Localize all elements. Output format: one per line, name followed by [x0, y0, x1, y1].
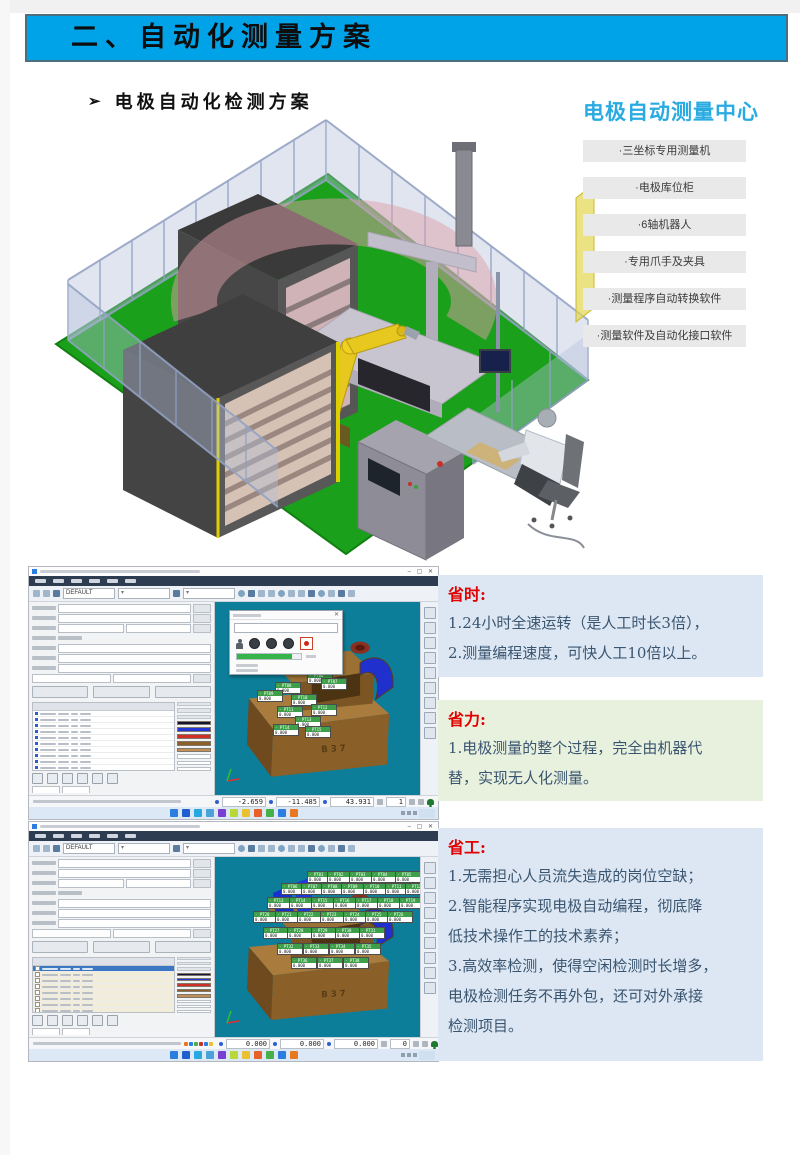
measure-point-label: · PT120.000 — [405, 883, 420, 895]
row-check-icon — [35, 1002, 40, 1007]
row-cell — [42, 998, 58, 1000]
panel-button — [32, 941, 88, 953]
row-cell — [40, 767, 56, 769]
benefit-box-2: 省力:1.电极测量的整个过程，完全由机器代替，实现无人化测量。 — [438, 700, 763, 801]
dialog-button — [283, 638, 294, 649]
toolbar-icon — [308, 590, 315, 597]
panel-buttons — [32, 686, 211, 698]
point-value: 0.000 — [400, 903, 420, 908]
row-check-icon — [35, 754, 38, 757]
color-swatch — [177, 748, 211, 753]
right-toolbar — [420, 602, 438, 795]
row-cell — [82, 974, 93, 976]
point-value: 0.000 — [330, 949, 354, 954]
menu-item — [107, 834, 118, 838]
row-check-icon — [35, 984, 40, 989]
point-value: 0.000 — [274, 730, 298, 735]
bell-icon — [427, 799, 434, 805]
form-row — [32, 859, 211, 867]
row-cell — [60, 968, 71, 970]
row-cell — [58, 761, 69, 763]
menu-item — [35, 579, 46, 583]
taskbar-clock — [419, 809, 435, 818]
benefit-title: 省力: — [448, 707, 753, 733]
table-header — [33, 958, 174, 966]
menu-item — [53, 579, 64, 583]
point-value: 0.000 — [388, 917, 412, 922]
measure-point-label: · PT350.000 — [355, 943, 381, 955]
menu-item — [53, 834, 64, 838]
point-value: 0.000 — [264, 933, 288, 938]
coord-y: -11.485 — [276, 797, 320, 807]
row-cell — [82, 1004, 93, 1006]
toolbar-icon — [33, 590, 40, 597]
benefit-line: 1.电极测量的整个过程，完全由机器代 — [448, 733, 753, 763]
point-value: 0.000 — [321, 917, 345, 922]
window-controls: – ▢ ✕ — [408, 569, 438, 575]
row-cell — [73, 968, 80, 970]
system-tray — [401, 807, 435, 819]
taskbar-app-icon — [278, 809, 286, 817]
measure-center-item: ·6轴机器人 — [583, 214, 746, 236]
row-check-icon — [35, 724, 38, 727]
menu-item — [125, 834, 136, 838]
row-cell — [82, 980, 93, 982]
row-cell — [60, 974, 71, 976]
row-check-icon — [35, 736, 38, 739]
axis-triad — [223, 1007, 243, 1027]
preset-dropdown: DEFAULT — [63, 588, 115, 599]
taskbar-app-icon — [230, 1051, 238, 1059]
form-row — [32, 889, 211, 897]
row-cell — [60, 998, 71, 1000]
table-side-column — [177, 957, 211, 1013]
row-cell — [40, 731, 56, 733]
taskbar-app-icon — [254, 1051, 262, 1059]
toolbar-icon — [268, 845, 275, 852]
dropdown: ▾ — [118, 588, 170, 599]
panel-button — [32, 686, 88, 698]
table-header — [33, 703, 174, 711]
bell-icon — [431, 1041, 438, 1047]
taskbar-app-icon — [266, 1051, 274, 1059]
row-cell — [82, 1010, 93, 1012]
window-controls: – ▢ ✕ — [408, 824, 438, 830]
row-check-icon — [35, 760, 38, 763]
benefit-line: 替，实现无人化测量。 — [448, 763, 753, 793]
coord-z: 0.000 — [334, 1039, 378, 1049]
row-cell — [82, 968, 93, 970]
search-row — [32, 929, 211, 937]
point-value: 0.000 — [304, 949, 328, 954]
view-tool-icon — [424, 937, 436, 949]
color-swatch — [177, 973, 211, 976]
row-cell — [58, 767, 69, 769]
window-title-bar: – ▢ ✕ — [29, 567, 438, 576]
taskbar-app-icon — [230, 809, 238, 817]
form-row — [32, 644, 211, 652]
row-cell — [82, 986, 93, 988]
benefit-line: 3.高效率检测，使得空闲检测时长增多， — [448, 951, 753, 981]
color-swatch — [177, 989, 211, 992]
form-row — [32, 624, 211, 632]
panel-icon-row — [32, 773, 211, 784]
windows-taskbar — [29, 807, 438, 819]
form-row — [32, 614, 211, 622]
benefit-box-1: 省时:1.24小时全速运转（是人工时长3倍），2.测量编程速度，可快人工10倍以… — [438, 575, 763, 677]
taskbar-app-icon — [170, 809, 178, 817]
point-value: 0.000 — [298, 917, 322, 922]
dialog-button — [249, 638, 260, 649]
measure-center-item: ·三坐标专用测量机 — [583, 140, 746, 162]
feature-table — [32, 702, 175, 771]
view-tool-icon — [424, 712, 436, 724]
dialog-dropdown — [234, 623, 338, 633]
toolbar-icon — [268, 590, 275, 597]
row-cell — [42, 980, 58, 982]
toolbar-icon — [33, 845, 40, 852]
toolbar-icon — [298, 845, 305, 852]
point-value: 0.000 — [278, 949, 302, 954]
arrow-bullet-icon: ➢ — [88, 92, 101, 110]
toolbar-icon — [318, 845, 325, 852]
menu-item — [89, 834, 100, 838]
row-cell — [82, 992, 93, 994]
window-title-text — [40, 825, 200, 828]
app-icon — [32, 569, 37, 574]
page-top-margin — [0, 0, 800, 13]
row-cell — [73, 998, 80, 1000]
taskbar-app-icon — [266, 809, 274, 817]
view-tool-icon — [424, 952, 436, 964]
measure-point-label: · PT050.000 — [395, 871, 420, 883]
taskbar-app-icon — [206, 809, 214, 817]
toolbar-icon — [238, 845, 245, 852]
row-cell — [40, 719, 56, 721]
row-cell — [80, 725, 91, 727]
toolbar-icon — [53, 590, 60, 597]
toolbar: DEFAULT ▾ ▾ — [29, 841, 438, 857]
viewport-3d: B37 · PT010.000· PT020.000· PT030.000· P… — [215, 857, 420, 1037]
form-row — [32, 869, 211, 877]
row-cell — [40, 713, 56, 715]
row-cell — [71, 755, 78, 757]
benefit-line: 检测项目。 — [448, 1011, 753, 1041]
view-tool-icon — [424, 982, 436, 994]
menu-item — [35, 834, 46, 838]
taskbar-app-icon — [218, 809, 226, 817]
dropdown: ▾ — [183, 843, 235, 854]
form-row — [32, 879, 211, 887]
feature-table — [32, 957, 175, 1013]
toolbar-icon — [278, 845, 285, 852]
measure-point-label: · PT360.000 — [291, 957, 317, 969]
toolbar-icon — [258, 845, 265, 852]
toolbar-icon — [308, 845, 315, 852]
view-tool-icon — [424, 637, 436, 649]
taskbar-app-icon — [290, 809, 298, 817]
measure-center-item: ·测量程序自动转换软件 — [583, 288, 746, 310]
row-check-icon — [35, 972, 40, 977]
color-swatch — [177, 721, 211, 726]
measure-point-label: · PT290.000 — [311, 927, 337, 939]
point-value: 0.000 — [258, 696, 282, 701]
row-cell — [42, 1004, 58, 1006]
toolbar-icon — [43, 590, 50, 597]
measure-point-label: · PT070.000 — [321, 678, 347, 690]
toolbar-icon — [238, 590, 245, 597]
row-cell — [58, 713, 69, 715]
row-cell — [80, 731, 91, 733]
point-value: 0.000 — [360, 933, 384, 938]
color-swatch — [177, 734, 211, 739]
row-cell — [71, 725, 78, 727]
panel-buttons — [32, 941, 211, 953]
point-value: 0.000 — [306, 732, 330, 737]
row-cell — [60, 986, 71, 988]
section-banner: 二、自动化测量方案 — [25, 14, 788, 62]
status-mini-icons — [184, 1042, 213, 1046]
table-side-column — [177, 702, 211, 771]
row-check-icon — [35, 712, 38, 715]
row-cell — [73, 1010, 80, 1012]
row-check-icon — [35, 1008, 40, 1013]
measure-point-label: · PT280.000 — [287, 927, 313, 939]
toolbar: DEFAULT ▾ ▾ — [29, 586, 438, 602]
toolbar-icon — [173, 845, 180, 852]
view-tool-icon — [424, 922, 436, 934]
measure-point-label: · PT330.000 — [303, 943, 329, 955]
record-button — [300, 637, 313, 650]
probe-count: 0 — [390, 1039, 410, 1049]
status-text — [33, 800, 181, 803]
row-cell — [73, 974, 80, 976]
point-value: 0.000 — [356, 949, 380, 954]
toolbar-icon — [248, 845, 255, 852]
toolbar-icon — [53, 845, 60, 852]
taskbar-clock — [419, 1051, 435, 1060]
dropdown: ▾ — [183, 588, 235, 599]
form-row — [32, 654, 211, 662]
row-cell — [71, 731, 78, 733]
benefit-title: 省时: — [448, 582, 753, 608]
point-value: 0.000 — [344, 963, 368, 968]
row-cell — [80, 749, 91, 751]
row-cell — [71, 743, 78, 745]
row-check-icon — [35, 990, 40, 995]
toolbar-icon — [43, 845, 50, 852]
toolbar-icon — [338, 590, 345, 597]
benefit-line: 低技术操作工的技术素养； — [448, 921, 753, 951]
color-swatch — [177, 994, 211, 997]
row-cell — [58, 755, 69, 757]
view-tool-icon — [424, 697, 436, 709]
measure-point-label: · PT120.000 — [311, 704, 337, 716]
benefit-box-3: 省工:1.无需担心人员流失造成的岗位空缺；2.智能程序实现电极自动编程，彻底降低… — [438, 828, 763, 1061]
row-cell — [73, 986, 80, 988]
row-cell — [42, 986, 58, 988]
taskbar-app-icon — [290, 1051, 298, 1059]
menu-item — [71, 834, 82, 838]
measure-point-label: · PT090.000 — [257, 690, 283, 702]
view-tool-icon — [424, 907, 436, 919]
benefit-line: 1.24小时全速运转（是人工时长3倍）， — [448, 608, 753, 638]
point-value: 0.000 — [372, 877, 396, 882]
windows-taskbar — [29, 1049, 438, 1061]
menu-bar — [29, 576, 438, 586]
panel-icon-row — [32, 1015, 211, 1026]
row-cell — [58, 719, 69, 721]
row-cell — [42, 968, 58, 970]
row-cell — [58, 725, 69, 727]
taskbar-app-icon — [182, 1051, 190, 1059]
toolbar-icon — [298, 590, 305, 597]
taskbar-app-icon — [242, 1051, 250, 1059]
row-cell — [80, 737, 91, 739]
menu-item — [125, 579, 136, 583]
measure-point-label: · PT270.000 — [263, 927, 289, 939]
row-cell — [71, 761, 78, 763]
taskbar-app-icon — [278, 1051, 286, 1059]
row-check-icon — [35, 742, 38, 745]
view-tool-icon — [424, 652, 436, 664]
color-swatch — [177, 983, 211, 986]
table-row — [33, 1008, 174, 1013]
measure-point-label: · PT340.000 — [329, 943, 355, 955]
view-tool-icon — [424, 877, 436, 889]
menu-bar — [29, 831, 438, 841]
row-cell — [71, 767, 78, 769]
benefit-title: 省工: — [448, 835, 753, 861]
row-cell — [80, 755, 91, 757]
row-cell — [80, 767, 91, 769]
panel-tabs — [32, 1028, 211, 1035]
row-cell — [40, 725, 56, 727]
taskbar-app-icon — [206, 1051, 214, 1059]
row-cell — [42, 1010, 58, 1012]
row-cell — [58, 731, 69, 733]
dropdown: ▾ — [118, 843, 170, 854]
row-cell — [42, 992, 58, 994]
panel-button — [93, 686, 149, 698]
row-cell — [60, 992, 71, 994]
toolbar-icon — [173, 590, 180, 597]
row-cell — [71, 719, 78, 721]
measure-point-label: · PT260.000 — [387, 911, 413, 923]
row-cell — [60, 1010, 71, 1012]
row-cell — [80, 743, 91, 745]
form-row — [32, 634, 211, 642]
preset-dropdown: DEFAULT — [63, 843, 115, 854]
taskbar-app-icon — [254, 809, 262, 817]
coord-y: 0.000 — [280, 1039, 324, 1049]
menu-item — [107, 579, 118, 583]
toolbar-icon — [338, 845, 345, 852]
system-tray — [401, 1049, 435, 1061]
row-check-icon — [35, 766, 38, 769]
row-cell — [42, 974, 58, 976]
measure-center-item: ·电极库位柜 — [583, 177, 746, 199]
measure-point-label: · PT380.000 — [343, 957, 369, 969]
measure-center-list: ·三坐标专用测量机·电极库位柜·6轴机器人·专用爪手及夹具·测量程序自动转换软件… — [583, 140, 788, 347]
row-check-icon — [35, 966, 40, 971]
row-cell — [80, 713, 91, 715]
toolbar-icon — [348, 845, 355, 852]
row-cell — [40, 743, 56, 745]
subsection-title: 电极自动化检测方案 — [115, 88, 313, 114]
row-check-icon — [35, 978, 40, 983]
row-cell — [40, 755, 56, 757]
app-icon — [32, 824, 37, 829]
toolbar-icon — [328, 590, 335, 597]
color-swatch — [177, 978, 211, 981]
row-cell — [58, 743, 69, 745]
color-swatch — [177, 727, 211, 732]
window-title-bar: – ▢ ✕ — [29, 822, 438, 831]
point-value: 0.000 — [292, 963, 316, 968]
benefit-line: 电极检测任务不再外包，还可对外承接 — [448, 981, 753, 1011]
row-cell — [80, 719, 91, 721]
row-cell — [71, 749, 78, 751]
status-bar: 0.000 0.000 0.000 0 — [29, 1037, 438, 1049]
viewport-3d: B37 · PT010.000· PT020.000· PT030.000· P… — [215, 602, 420, 795]
row-cell — [73, 1004, 80, 1006]
form-row — [32, 899, 211, 907]
measure-center-item: ·专用爪手及夹具 — [583, 251, 746, 273]
subsection-heading: ➢ 电极自动化检测方案 — [88, 88, 313, 114]
axis-triad — [223, 765, 243, 785]
row-cell — [60, 1004, 71, 1006]
menu-item — [71, 579, 82, 583]
toolbar-icon — [318, 590, 325, 597]
measure-point-label: · PT040.000 — [371, 871, 397, 883]
row-cell — [73, 980, 80, 982]
view-tool-icon — [424, 967, 436, 979]
view-tool-icon — [424, 622, 436, 634]
point-value: 0.000 — [288, 933, 312, 938]
point-value: 0.000 — [336, 933, 360, 938]
view-tool-icon — [424, 892, 436, 904]
window-title-text — [40, 570, 200, 573]
view-tool-icon — [424, 862, 436, 874]
measure-center-item: ·测量软件及自动化接口软件 — [583, 325, 746, 347]
benefit-line: 2.测量编程速度，可快人工10倍以上。 — [448, 638, 753, 668]
toolbar-icon — [278, 590, 285, 597]
point-value: 0.000 — [312, 933, 336, 938]
svg-text:B37: B37 — [321, 744, 349, 756]
robot-cell-illustration — [28, 112, 608, 562]
panel-tabs — [32, 786, 211, 793]
coord-x: 0.000 — [226, 1039, 270, 1049]
dialog-title-bar: ✕ — [230, 611, 342, 620]
dialog-button — [266, 638, 277, 649]
toolbar-icon — [348, 590, 355, 597]
row-cell — [60, 980, 71, 982]
view-tool-icon — [424, 607, 436, 619]
panel-button — [93, 941, 149, 953]
row-cell — [40, 737, 56, 739]
left-panel — [29, 602, 215, 795]
toolbar-icon — [248, 590, 255, 597]
row-cell — [58, 737, 69, 739]
measure-point-label: · PT150.000 — [305, 726, 331, 738]
left-panel — [29, 857, 215, 1037]
status-text — [33, 1042, 181, 1045]
view-tool-icon — [424, 727, 436, 739]
point-value: 0.000 — [312, 710, 336, 715]
measure-point-label: · PT310.000 — [359, 927, 385, 939]
row-cell — [73, 992, 80, 994]
